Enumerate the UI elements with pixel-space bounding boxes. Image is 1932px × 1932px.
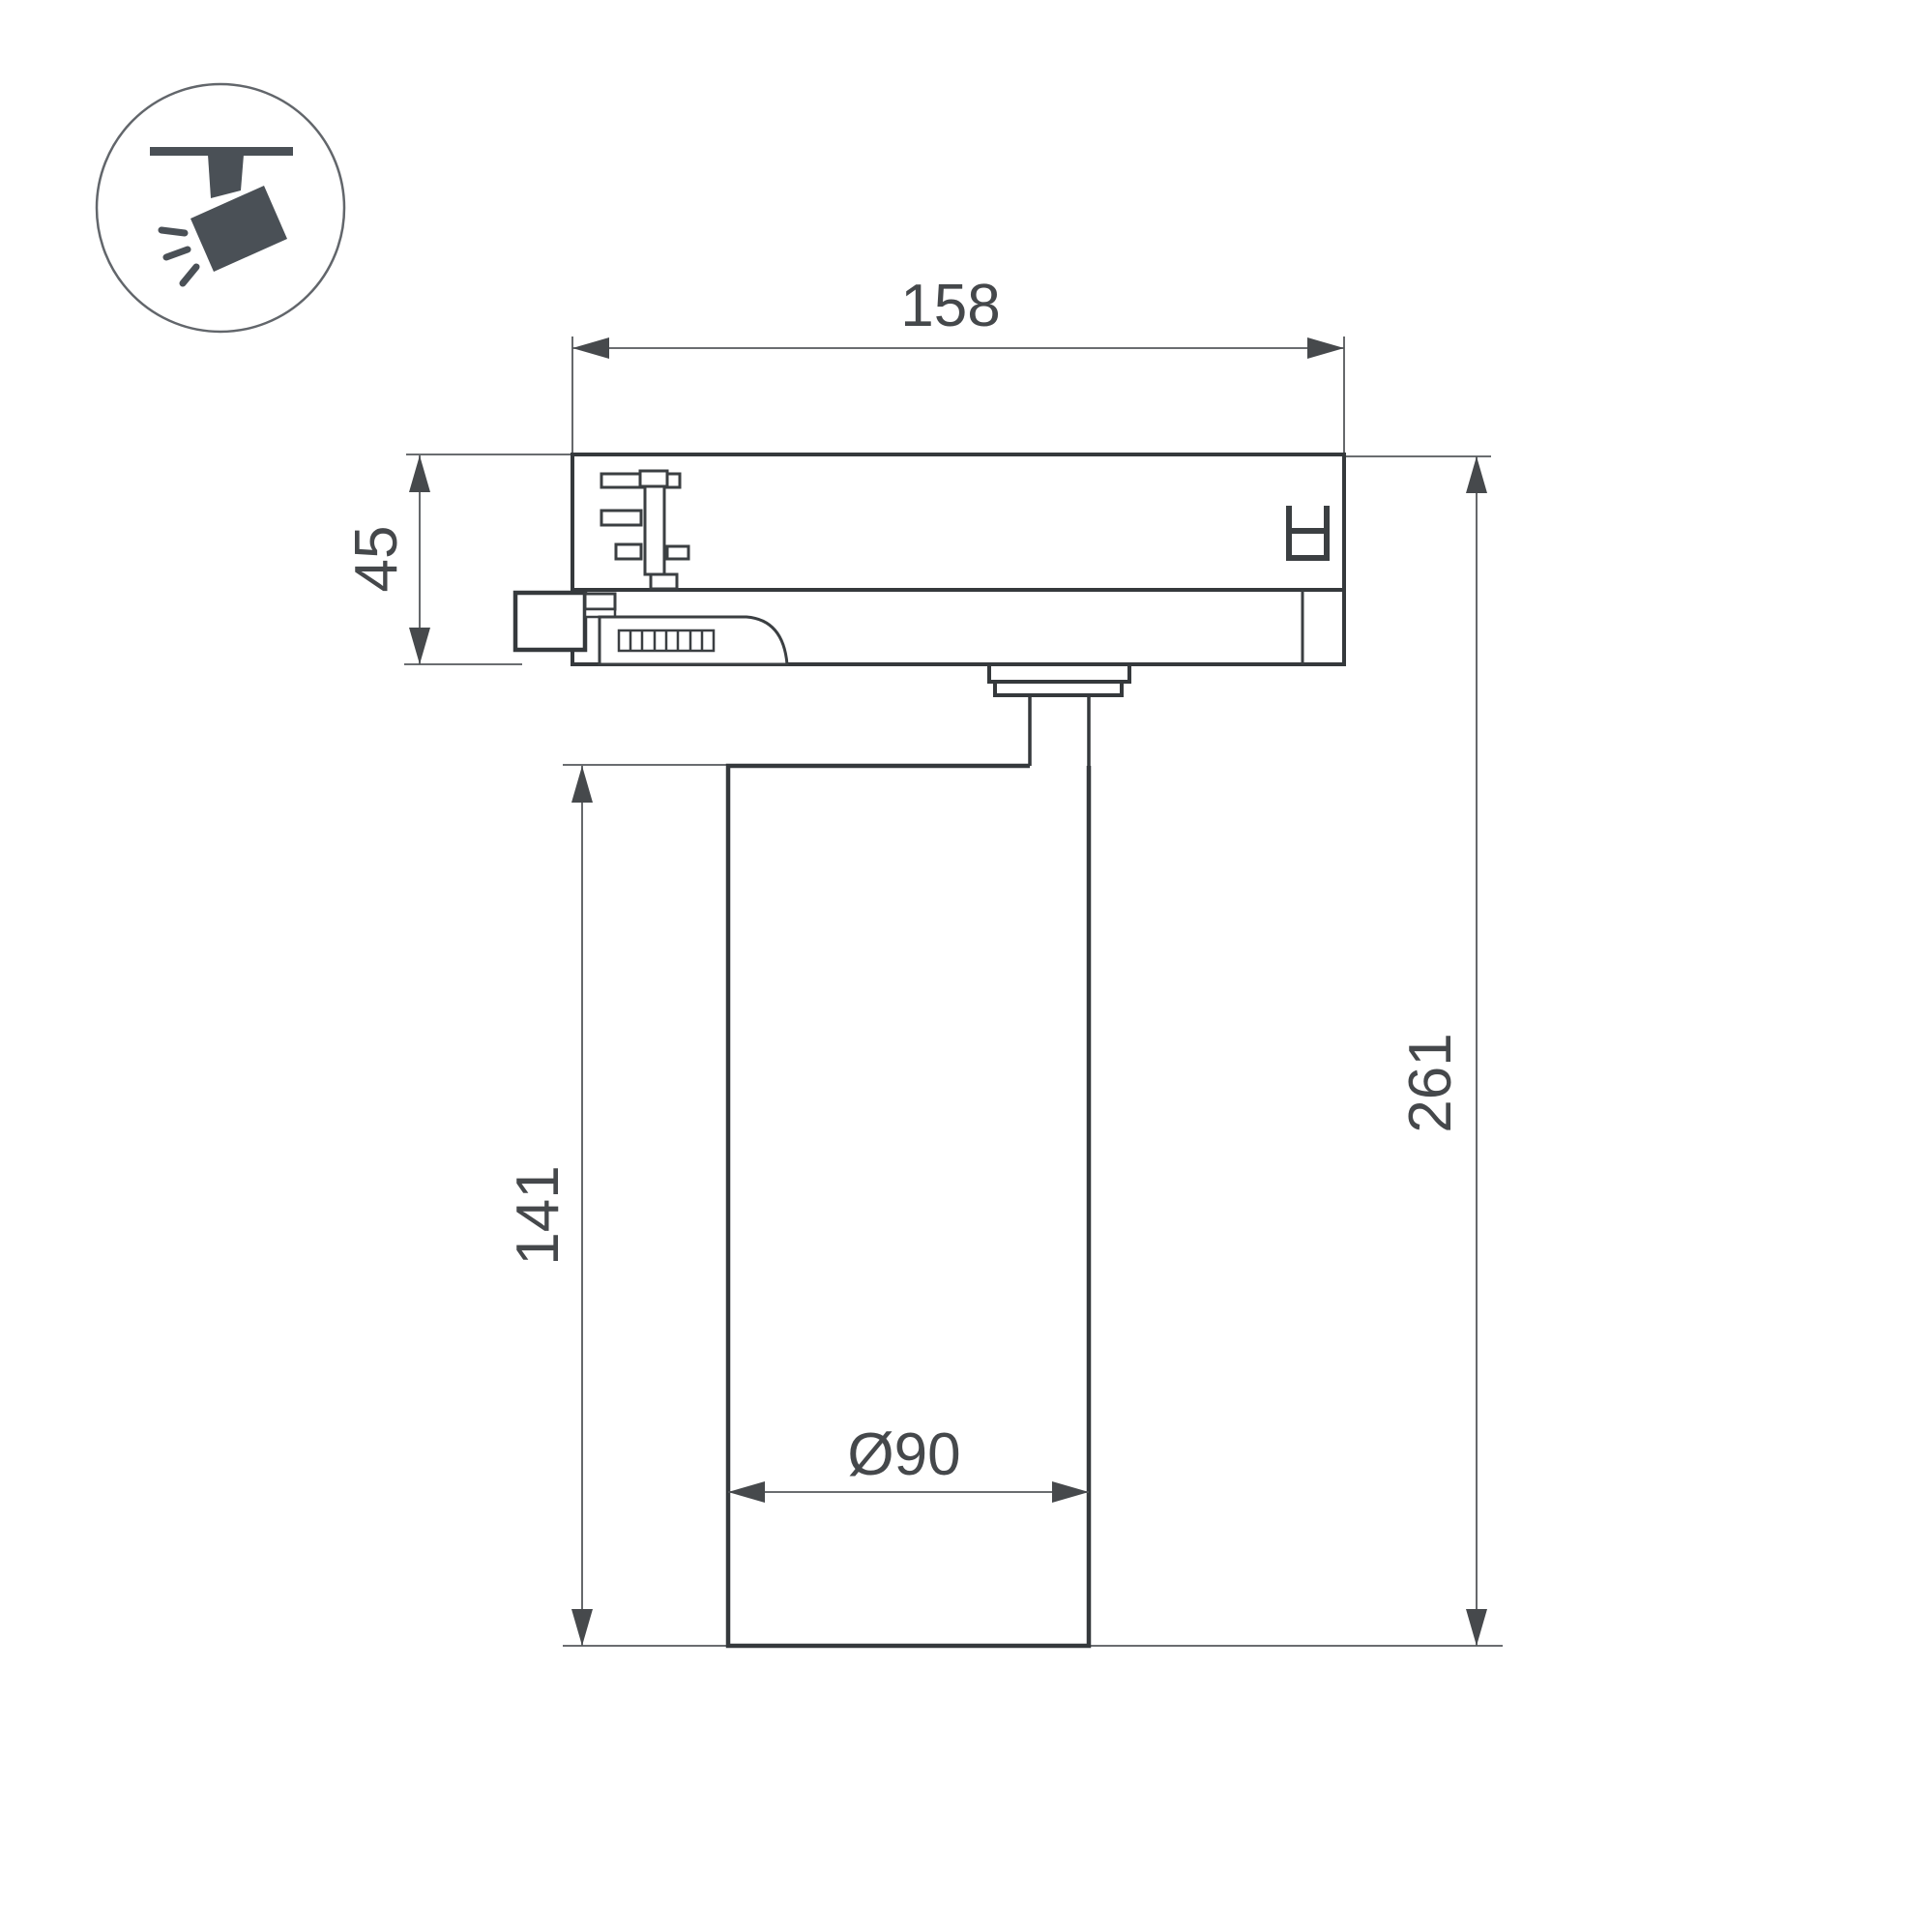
ribbed-slider	[619, 630, 714, 651]
dim-label-158: 158	[900, 273, 1000, 339]
technical-drawing-canvas: 158 45 141 261 Ø90	[0, 0, 1932, 1932]
lock-lever-notch	[585, 594, 615, 609]
contact-nub	[667, 546, 688, 559]
track-adapter	[515, 454, 1344, 664]
mount-step-upper	[989, 664, 1129, 682]
arrow-up-icon	[409, 455, 430, 492]
lock-lever	[515, 593, 585, 650]
icon-track-bar	[150, 147, 293, 156]
dim-label-45: 45	[343, 526, 410, 593]
mount-step-lower	[995, 682, 1122, 695]
contact-prong-middle	[601, 511, 641, 525]
arrow-left-icon	[572, 337, 609, 359]
arrow-down-icon	[571, 1609, 593, 1646]
dim-label-d90: Ø90	[847, 1421, 960, 1488]
contact-prong-bottom	[616, 544, 641, 559]
dim-label-261: 261	[1397, 1033, 1464, 1132]
pin-foot	[651, 574, 677, 589]
pin-shaft	[645, 485, 664, 574]
arrow-up-icon	[571, 766, 593, 803]
pin-cap	[640, 471, 667, 486]
dim-label-141: 141	[505, 1165, 571, 1265]
dimension-adapter-height: 45	[343, 455, 430, 664]
track-spotlight-icon	[97, 84, 344, 332]
arrow-right-icon	[1307, 337, 1344, 359]
mount-stem	[989, 664, 1129, 766]
drawing-page: 158 45 141 261 Ø90	[0, 0, 1932, 1932]
dimension-track-adapter-width: 158	[572, 273, 1344, 359]
dimension-total-height: 261	[1397, 456, 1487, 1646]
dimension-body-height: 141	[505, 766, 593, 1646]
arrow-up-icon	[1466, 456, 1487, 493]
lamp-body-cylinder	[728, 766, 1089, 1646]
arrow-down-icon	[409, 628, 430, 664]
arrow-down-icon	[1466, 1609, 1487, 1646]
